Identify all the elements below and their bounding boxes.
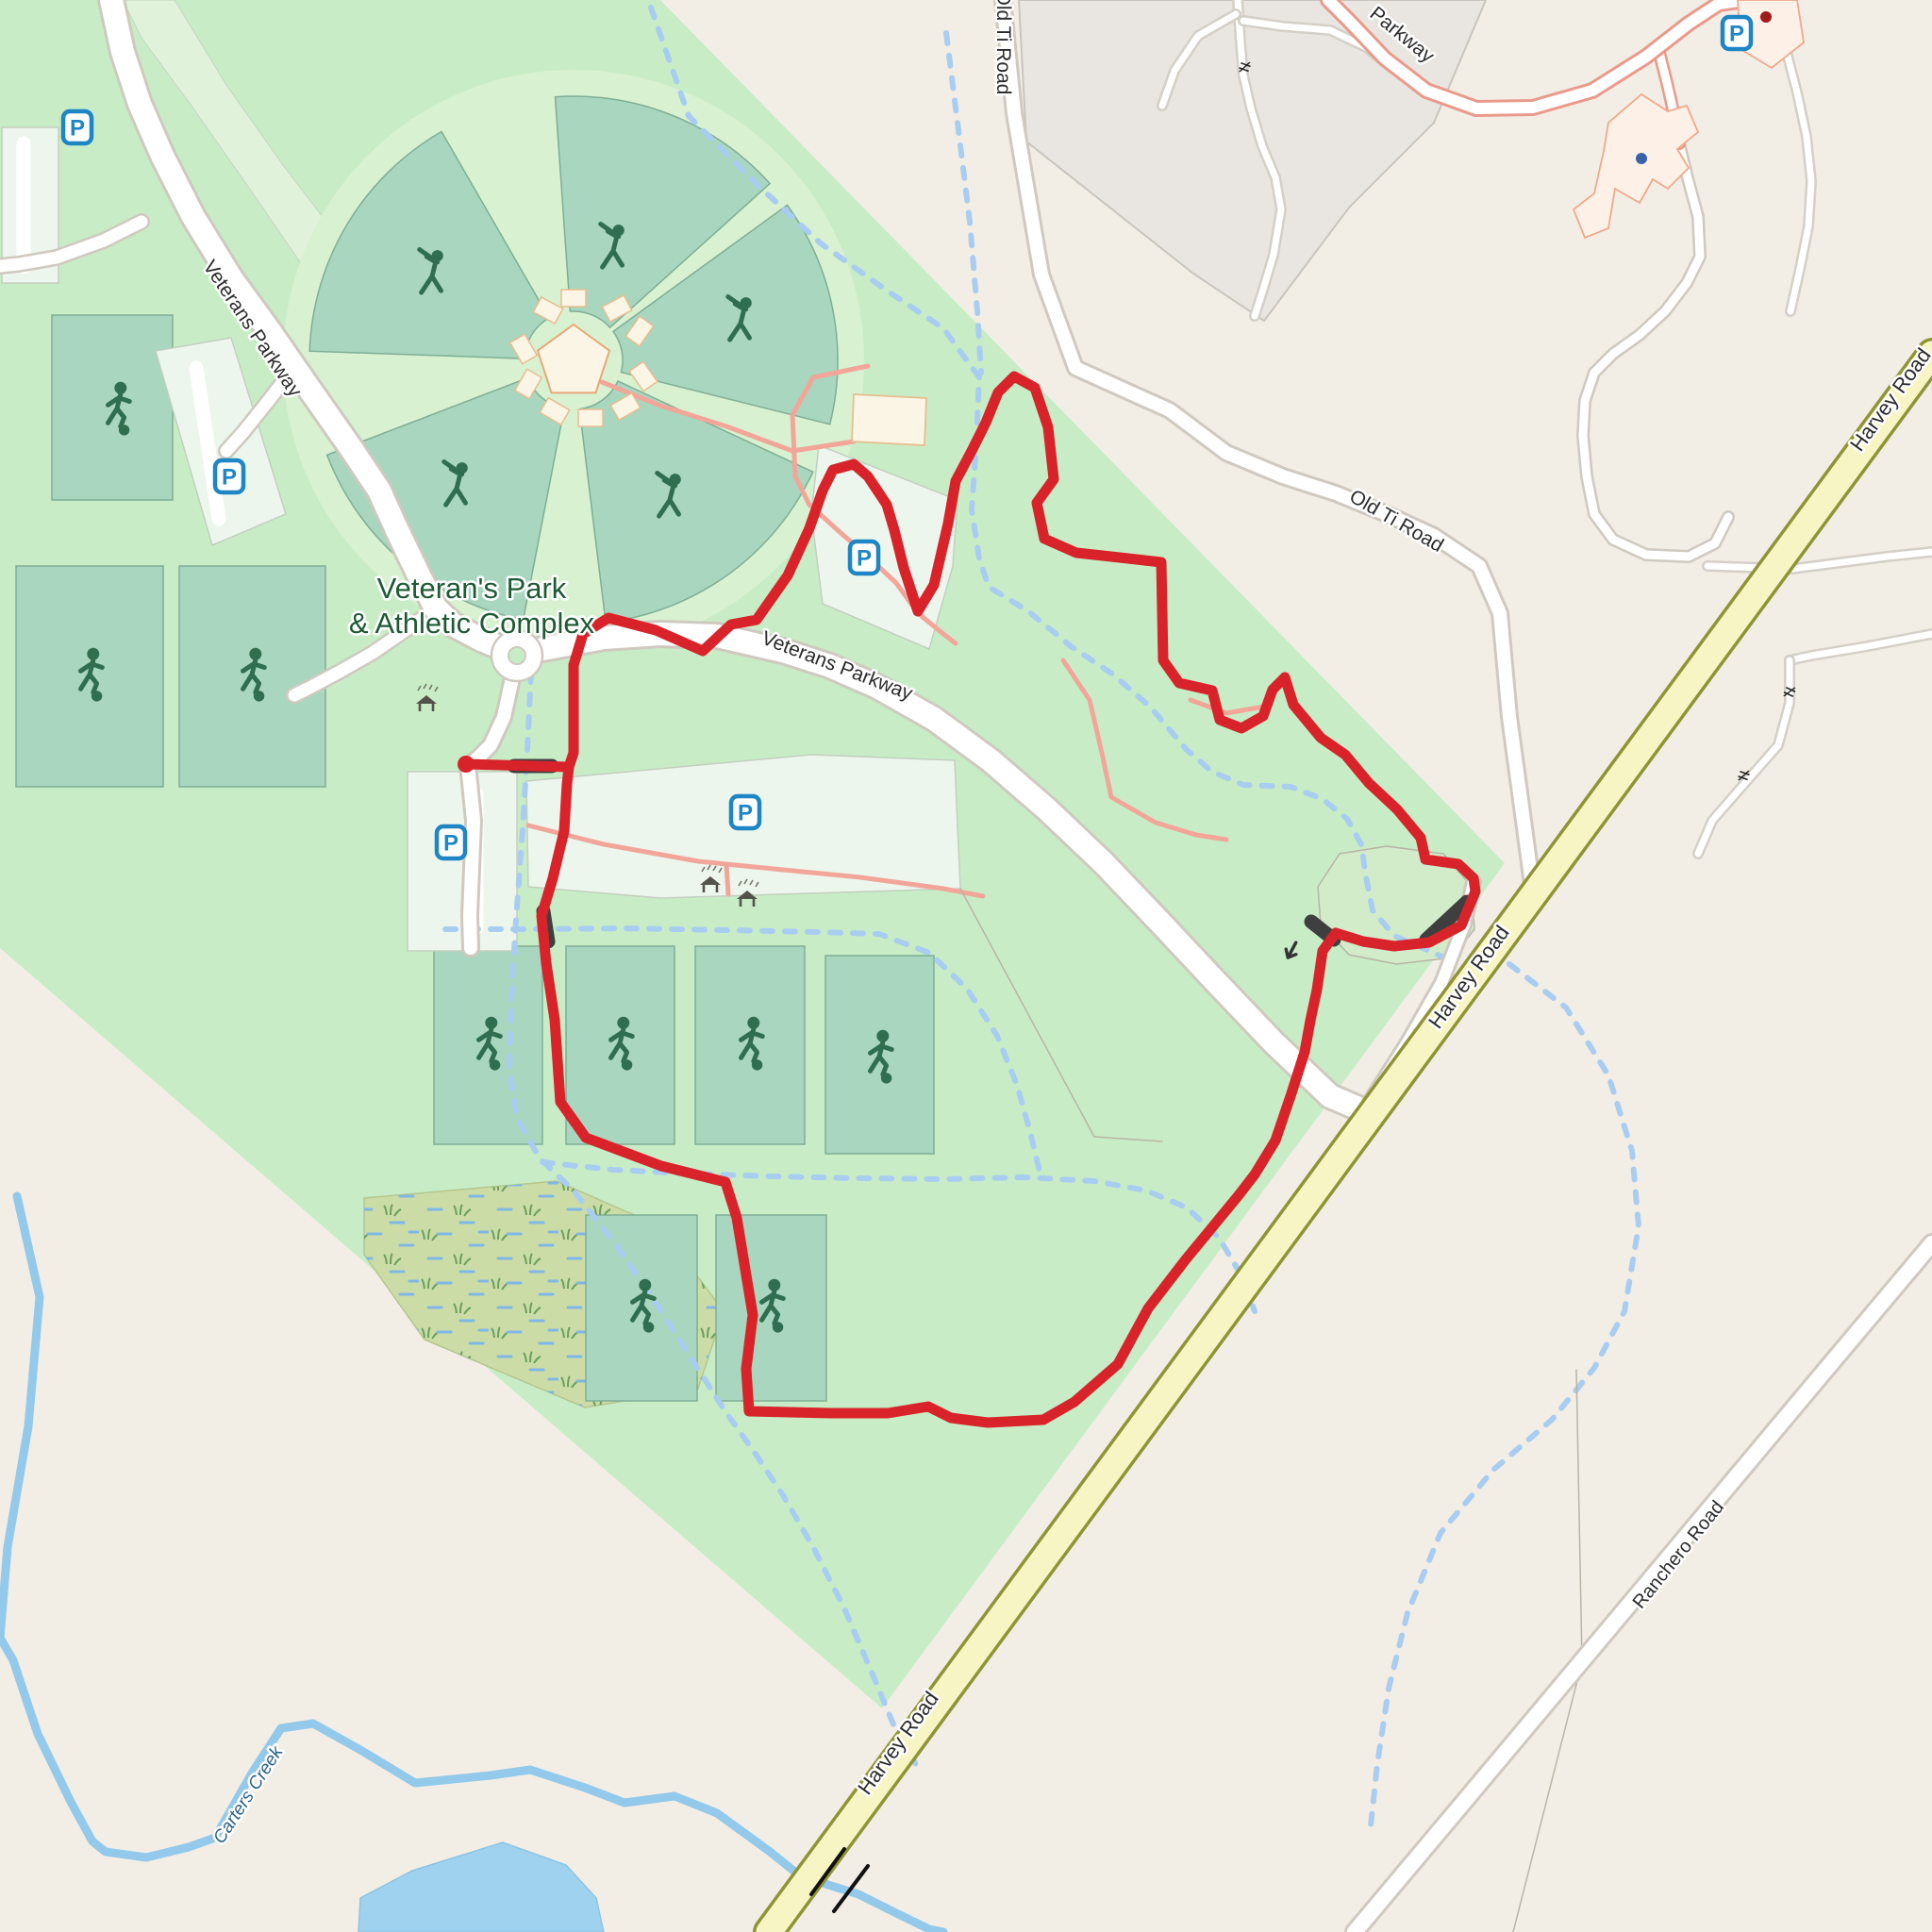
soccer-ball: [881, 1073, 891, 1083]
parking-icon-letter: P: [1729, 22, 1744, 47]
soccer-ball: [752, 1059, 762, 1070]
gps-track-stub: [466, 764, 569, 767]
parking-icon-1: P: [63, 111, 92, 143]
parking-icon-letter: P: [857, 546, 872, 572]
road-label-old-ti-road-north: Old Ti Road: [992, 0, 1014, 94]
parking-icon-6: P: [1723, 17, 1751, 49]
soccer-ball: [622, 1059, 632, 1070]
map-canvas[interactable]: PPPPPP≠≠≠Veteran's Park& Athletic Comple…: [0, 0, 1932, 1932]
soccer-field-1: [52, 315, 173, 500]
soccer-ball: [254, 691, 264, 701]
poi-dot-1: [1636, 153, 1647, 164]
parking-icon-2: P: [215, 460, 243, 492]
parking-icon-5: P: [437, 826, 465, 858]
track-start-dot: [458, 756, 475, 773]
parking-icon-letter: P: [443, 831, 458, 857]
soccer-ball: [92, 691, 102, 701]
parking-icon-3: P: [850, 541, 878, 574]
soccer-ball: [490, 1059, 500, 1070]
parking-icon-letter: P: [222, 465, 237, 491]
building-restrooms: [852, 394, 926, 445]
soccer-ball: [119, 425, 129, 435]
parking-icon-letter: P: [738, 801, 753, 826]
footpath-pink-3: [726, 865, 728, 894]
poi-dot-2: [1760, 11, 1772, 23]
park-name-line2: & Athletic Complex: [349, 607, 595, 640]
park-name-line1: Veteran's Park: [377, 572, 567, 605]
map-viewport[interactable]: PPPPPP≠≠≠Veteran's Park& Athletic Comple…: [0, 0, 1932, 1932]
soccer-ball: [773, 1322, 783, 1332]
dugout-building-2: [561, 290, 586, 307]
parking-icon-letter: P: [70, 116, 85, 142]
dugout-building-8: [578, 409, 603, 426]
soccer-ball: [643, 1322, 654, 1332]
roundabout-island: [508, 647, 525, 664]
parking-icon-4: P: [731, 796, 759, 828]
